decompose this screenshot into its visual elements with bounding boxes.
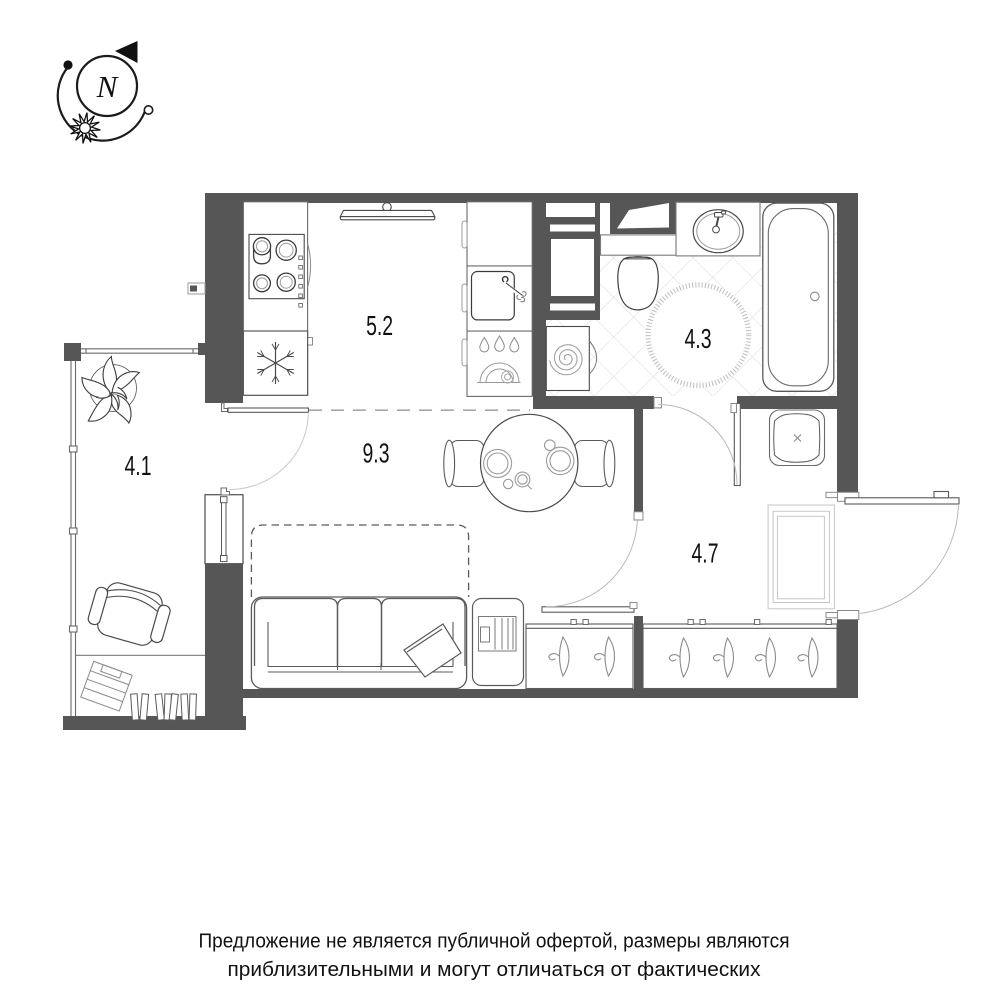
svg-text:4.1: 4.1 <box>125 450 152 481</box>
svg-text:N: N <box>96 69 120 104</box>
svg-text:приблизительными и могут отлич: приблизительными и могут отличаться от ф… <box>228 958 762 981</box>
svg-text:9.3: 9.3 <box>363 438 390 469</box>
svg-text:Предложение не является публич: Предложение не является публичной оферто… <box>199 930 790 953</box>
svg-text:5.2: 5.2 <box>366 310 393 341</box>
svg-text:4.3: 4.3 <box>685 323 712 354</box>
svg-text:4.7: 4.7 <box>692 537 719 568</box>
